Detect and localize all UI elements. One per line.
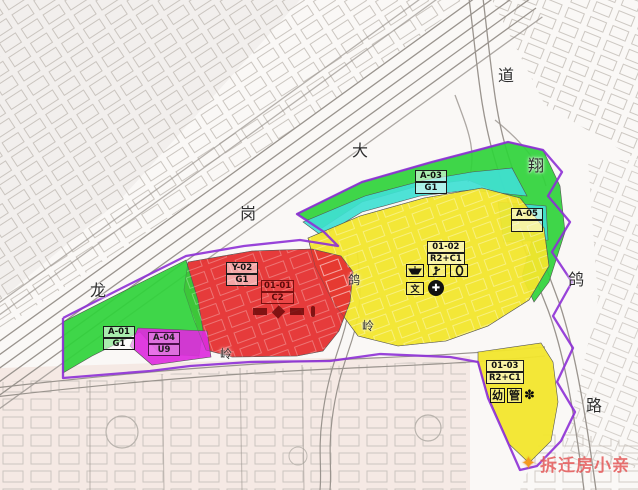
management-label: 管 bbox=[507, 388, 522, 403]
red-parcel-icon bbox=[253, 308, 267, 315]
parcel-code: U9 bbox=[148, 344, 180, 356]
parcel-code: C2 bbox=[261, 292, 294, 304]
red-parcel-icon bbox=[272, 305, 285, 318]
parcel-label-y02: Y-02 G1 bbox=[226, 262, 258, 286]
road-label-char: 岗 bbox=[240, 206, 256, 222]
watermark-logo-icon: ✦ bbox=[521, 453, 536, 474]
parcel-label-0103: 01-03 R2+C1 bbox=[486, 360, 524, 384]
parcel-id: A-01 bbox=[103, 326, 135, 338]
parcel-label-a04: A-04 U9 bbox=[148, 332, 180, 356]
red-parcel-icon bbox=[311, 306, 315, 317]
road-label-char: 路 bbox=[586, 398, 602, 414]
road-label-char: 鸽 bbox=[348, 272, 360, 288]
culture-icon: 文 bbox=[406, 282, 424, 295]
parcel-label-a05: A-05 bbox=[511, 208, 543, 232]
parcel-id: A-04 bbox=[148, 332, 180, 344]
parcel-label-0101: 01-01 C2 bbox=[261, 280, 294, 304]
kindergarten-label-group: 幼 管 ✽ bbox=[490, 388, 535, 403]
kindergarten-label: 幼 bbox=[490, 388, 505, 403]
parcel-code: G1 bbox=[103, 338, 135, 350]
parcel-code: G1 bbox=[226, 274, 258, 286]
parcel-id: 01-01 bbox=[261, 280, 294, 292]
boat-icon bbox=[406, 264, 424, 277]
parcel-label-0102: 01-02 R2+C1 bbox=[427, 241, 465, 265]
road-label-char: 鸽 bbox=[568, 272, 584, 288]
facility-icons-0101 bbox=[253, 306, 315, 317]
medical-cross-icon: ✚ bbox=[428, 280, 444, 296]
oval-icon bbox=[450, 264, 468, 277]
parcel-label-a01: A-01 G1 bbox=[103, 326, 135, 350]
parcel-code bbox=[511, 220, 543, 232]
road-label-char: 大 bbox=[352, 143, 368, 159]
road-label-char: 岭 bbox=[220, 346, 232, 362]
person-icon bbox=[428, 264, 446, 277]
parcel-label-a03: A-03 G1 bbox=[415, 170, 447, 194]
road-label-char: 翔 bbox=[528, 158, 544, 174]
facility-icons-0102: 文 ✚ bbox=[406, 264, 468, 296]
flower-icon: ✽ bbox=[524, 389, 535, 402]
parcel-id: A-03 bbox=[415, 170, 447, 182]
watermark-text: 拆迁房小亲 bbox=[540, 451, 630, 476]
red-parcel-icon bbox=[290, 308, 304, 315]
parcel-code: R2+C1 bbox=[486, 372, 524, 384]
parcel-code: G1 bbox=[415, 182, 447, 194]
parcel-id: A-05 bbox=[511, 208, 543, 220]
planning-map: 龙 岗 大 道 翔 鸽 路 鸽 岭 岭 A-03 G1 A-05 01-02 R… bbox=[0, 0, 638, 490]
parcel-id: 01-02 bbox=[427, 241, 465, 253]
parcel-id: 01-03 bbox=[486, 360, 524, 372]
parcel-id: Y-02 bbox=[226, 262, 258, 274]
watermark: ✦ 拆迁房小亲 bbox=[521, 451, 630, 476]
map-canvas bbox=[0, 0, 638, 490]
road-label-char: 道 bbox=[498, 68, 514, 84]
road-label-char: 龙 bbox=[90, 283, 106, 299]
road-label-char: 岭 bbox=[362, 318, 374, 334]
